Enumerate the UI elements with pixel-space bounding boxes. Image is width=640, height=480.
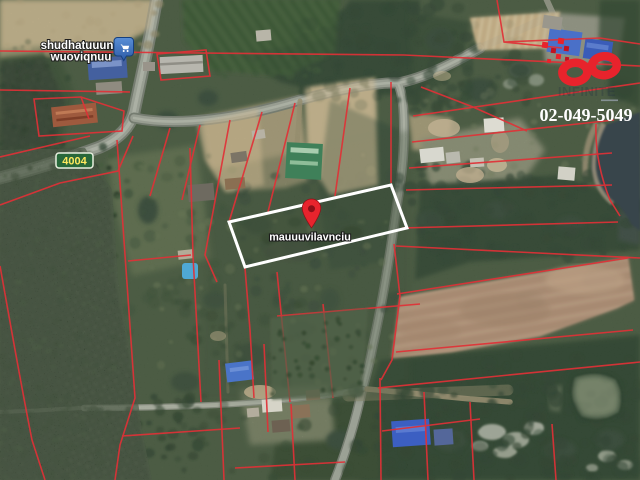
svg-text:02-049-5049: 02-049-5049 (540, 105, 633, 125)
svg-text:mauuuvilavnciu: mauuuvilavnciu (269, 232, 351, 244)
svg-text:wuoviqnuu: wuoviqnuu (50, 52, 112, 64)
svg-text:INFINITE: INFINITE (558, 84, 616, 99)
svg-text:shudhatuuun: shudhatuuun (41, 40, 114, 52)
svg-text:4004: 4004 (62, 156, 87, 168)
